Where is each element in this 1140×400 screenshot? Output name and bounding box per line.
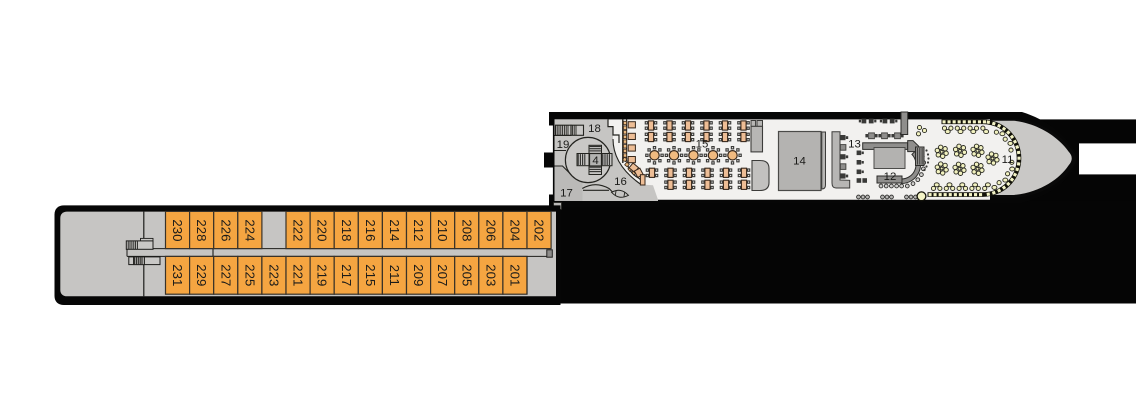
svg-text:205: 205 <box>459 264 474 286</box>
svg-text:217: 217 <box>339 264 354 286</box>
svg-text:203: 203 <box>483 264 498 286</box>
svg-text:15: 15 <box>696 139 709 151</box>
svg-text:215: 215 <box>363 264 378 286</box>
svg-text:201: 201 <box>508 264 523 286</box>
svg-text:207: 207 <box>435 264 450 286</box>
svg-text:218: 218 <box>339 219 354 241</box>
svg-text:206: 206 <box>483 219 498 241</box>
svg-text:229: 229 <box>194 264 209 286</box>
svg-text:228: 228 <box>194 219 209 241</box>
svg-text:219: 219 <box>315 264 330 286</box>
svg-text:13: 13 <box>848 138 861 150</box>
svg-text:208: 208 <box>459 219 474 241</box>
svg-text:18: 18 <box>588 123 601 135</box>
svg-text:227: 227 <box>218 264 233 286</box>
svg-text:223: 223 <box>266 264 281 286</box>
svg-text:11: 11 <box>1002 154 1014 166</box>
svg-text:220: 220 <box>315 219 330 241</box>
svg-text:214: 214 <box>387 219 402 241</box>
svg-text:19: 19 <box>557 139 570 151</box>
svg-text:221: 221 <box>291 264 306 286</box>
svg-text:14: 14 <box>793 155 806 167</box>
svg-text:210: 210 <box>435 219 450 241</box>
svg-text:224: 224 <box>242 219 257 241</box>
svg-text:230: 230 <box>170 219 185 241</box>
svg-text:222: 222 <box>291 219 306 241</box>
svg-text:202: 202 <box>532 219 547 241</box>
svg-text:231: 231 <box>170 264 185 286</box>
svg-text:212: 212 <box>411 219 426 241</box>
svg-text:16: 16 <box>614 176 627 188</box>
svg-text:216: 216 <box>363 219 378 241</box>
svg-text:12: 12 <box>884 171 897 183</box>
svg-text:226: 226 <box>218 219 233 241</box>
svg-text:209: 209 <box>411 264 426 286</box>
svg-text:4: 4 <box>592 155 598 167</box>
svg-text:211: 211 <box>387 265 402 286</box>
svg-text:225: 225 <box>242 264 257 286</box>
svg-text:204: 204 <box>508 219 523 241</box>
svg-text:17: 17 <box>560 187 573 199</box>
